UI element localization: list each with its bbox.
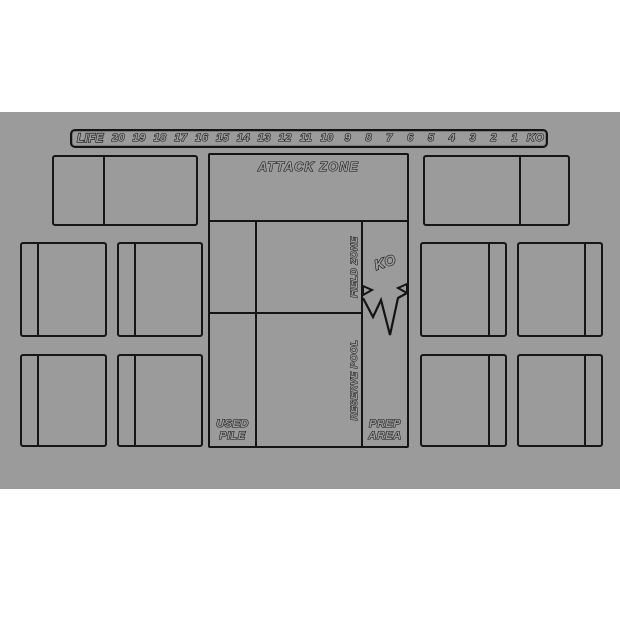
left-card-slot-1-divider: [37, 244, 39, 335]
life-value[interactable]: 10: [317, 133, 338, 144]
life-value[interactable]: 7: [379, 133, 400, 144]
life-value[interactable]: 2: [483, 133, 504, 144]
field-zone-label: FIELD ZONE: [349, 236, 360, 297]
life-value[interactable]: 20: [108, 133, 129, 144]
top-left-card-zone[interactable]: [52, 155, 198, 226]
right-card-slot-4-divider: [584, 356, 586, 445]
ko-zone-label: KO: [362, 248, 409, 277]
life-value[interactable]: KO: [525, 133, 546, 144]
life-value[interactable]: 4: [442, 133, 463, 144]
left-card-slot-3-divider: [37, 356, 39, 445]
used-pile-label: USED PILE: [210, 419, 255, 443]
life-value[interactable]: 9: [337, 133, 358, 144]
life-value[interactable]: 19: [129, 133, 150, 144]
right-card-slot-2-divider: [584, 244, 586, 335]
top-right-card-zone[interactable]: [423, 155, 570, 226]
life-track: LIFE 2019181716151413121110987654321KO: [70, 129, 548, 148]
life-value[interactable]: 13: [254, 133, 275, 144]
ko-prep-column[interactable]: KO PREP AREA: [361, 222, 407, 446]
life-value[interactable]: 12: [275, 133, 296, 144]
left-card-slot-4[interactable]: [117, 354, 203, 447]
reserve-pool[interactable]: RESERVE POOL: [257, 314, 361, 446]
life-value[interactable]: 8: [358, 133, 379, 144]
right-card-slot-1[interactable]: [420, 242, 507, 337]
life-track-values: 2019181716151413121110987654321KO: [108, 131, 546, 146]
top-right-card-zone-divider: [519, 157, 521, 224]
playmat-canvas: LIFE 2019181716151413121110987654321KO A…: [0, 0, 620, 620]
top-left-card-zone-divider: [103, 157, 105, 224]
right-card-slot-3[interactable]: [420, 354, 507, 447]
prep-area-label: PREP AREA: [363, 419, 407, 443]
attack-zone-label: ATTACK ZONE: [258, 160, 359, 174]
right-card-slot-2[interactable]: [517, 242, 603, 337]
left-card-slot-2-divider: [134, 244, 136, 335]
life-value[interactable]: 18: [150, 133, 171, 144]
used-pile[interactable]: USED PILE: [210, 314, 257, 446]
life-value[interactable]: 11: [296, 133, 317, 144]
left-card-slot-2[interactable]: [117, 242, 203, 337]
burst-icon: [361, 282, 409, 338]
reserve-pool-label: RESERVE POOL: [349, 340, 360, 421]
field-side-slot[interactable]: [210, 222, 257, 312]
left-card-slot-3[interactable]: [20, 354, 107, 447]
left-card-slot-4-divider: [134, 356, 136, 445]
right-card-slot-3-divider: [488, 356, 490, 445]
left-card-slot-1[interactable]: [20, 242, 107, 337]
life-value[interactable]: 14: [233, 133, 254, 144]
life-value[interactable]: 16: [191, 133, 212, 144]
field-zone[interactable]: FIELD ZONE: [257, 222, 361, 312]
life-value[interactable]: 3: [463, 133, 484, 144]
life-value[interactable]: 6: [400, 133, 421, 144]
life-value[interactable]: 17: [171, 133, 192, 144]
life-value[interactable]: 1: [504, 133, 525, 144]
life-value[interactable]: 5: [421, 133, 442, 144]
attack-zone[interactable]: ATTACK ZONE: [210, 155, 407, 222]
center-zone-complex: ATTACK ZONE FIELD ZONE USED PILE RESERVE…: [208, 153, 409, 448]
life-value[interactable]: 15: [212, 133, 233, 144]
right-card-slot-4[interactable]: [517, 354, 603, 447]
life-track-label: LIFE: [77, 133, 104, 145]
right-card-slot-1-divider: [488, 244, 490, 335]
